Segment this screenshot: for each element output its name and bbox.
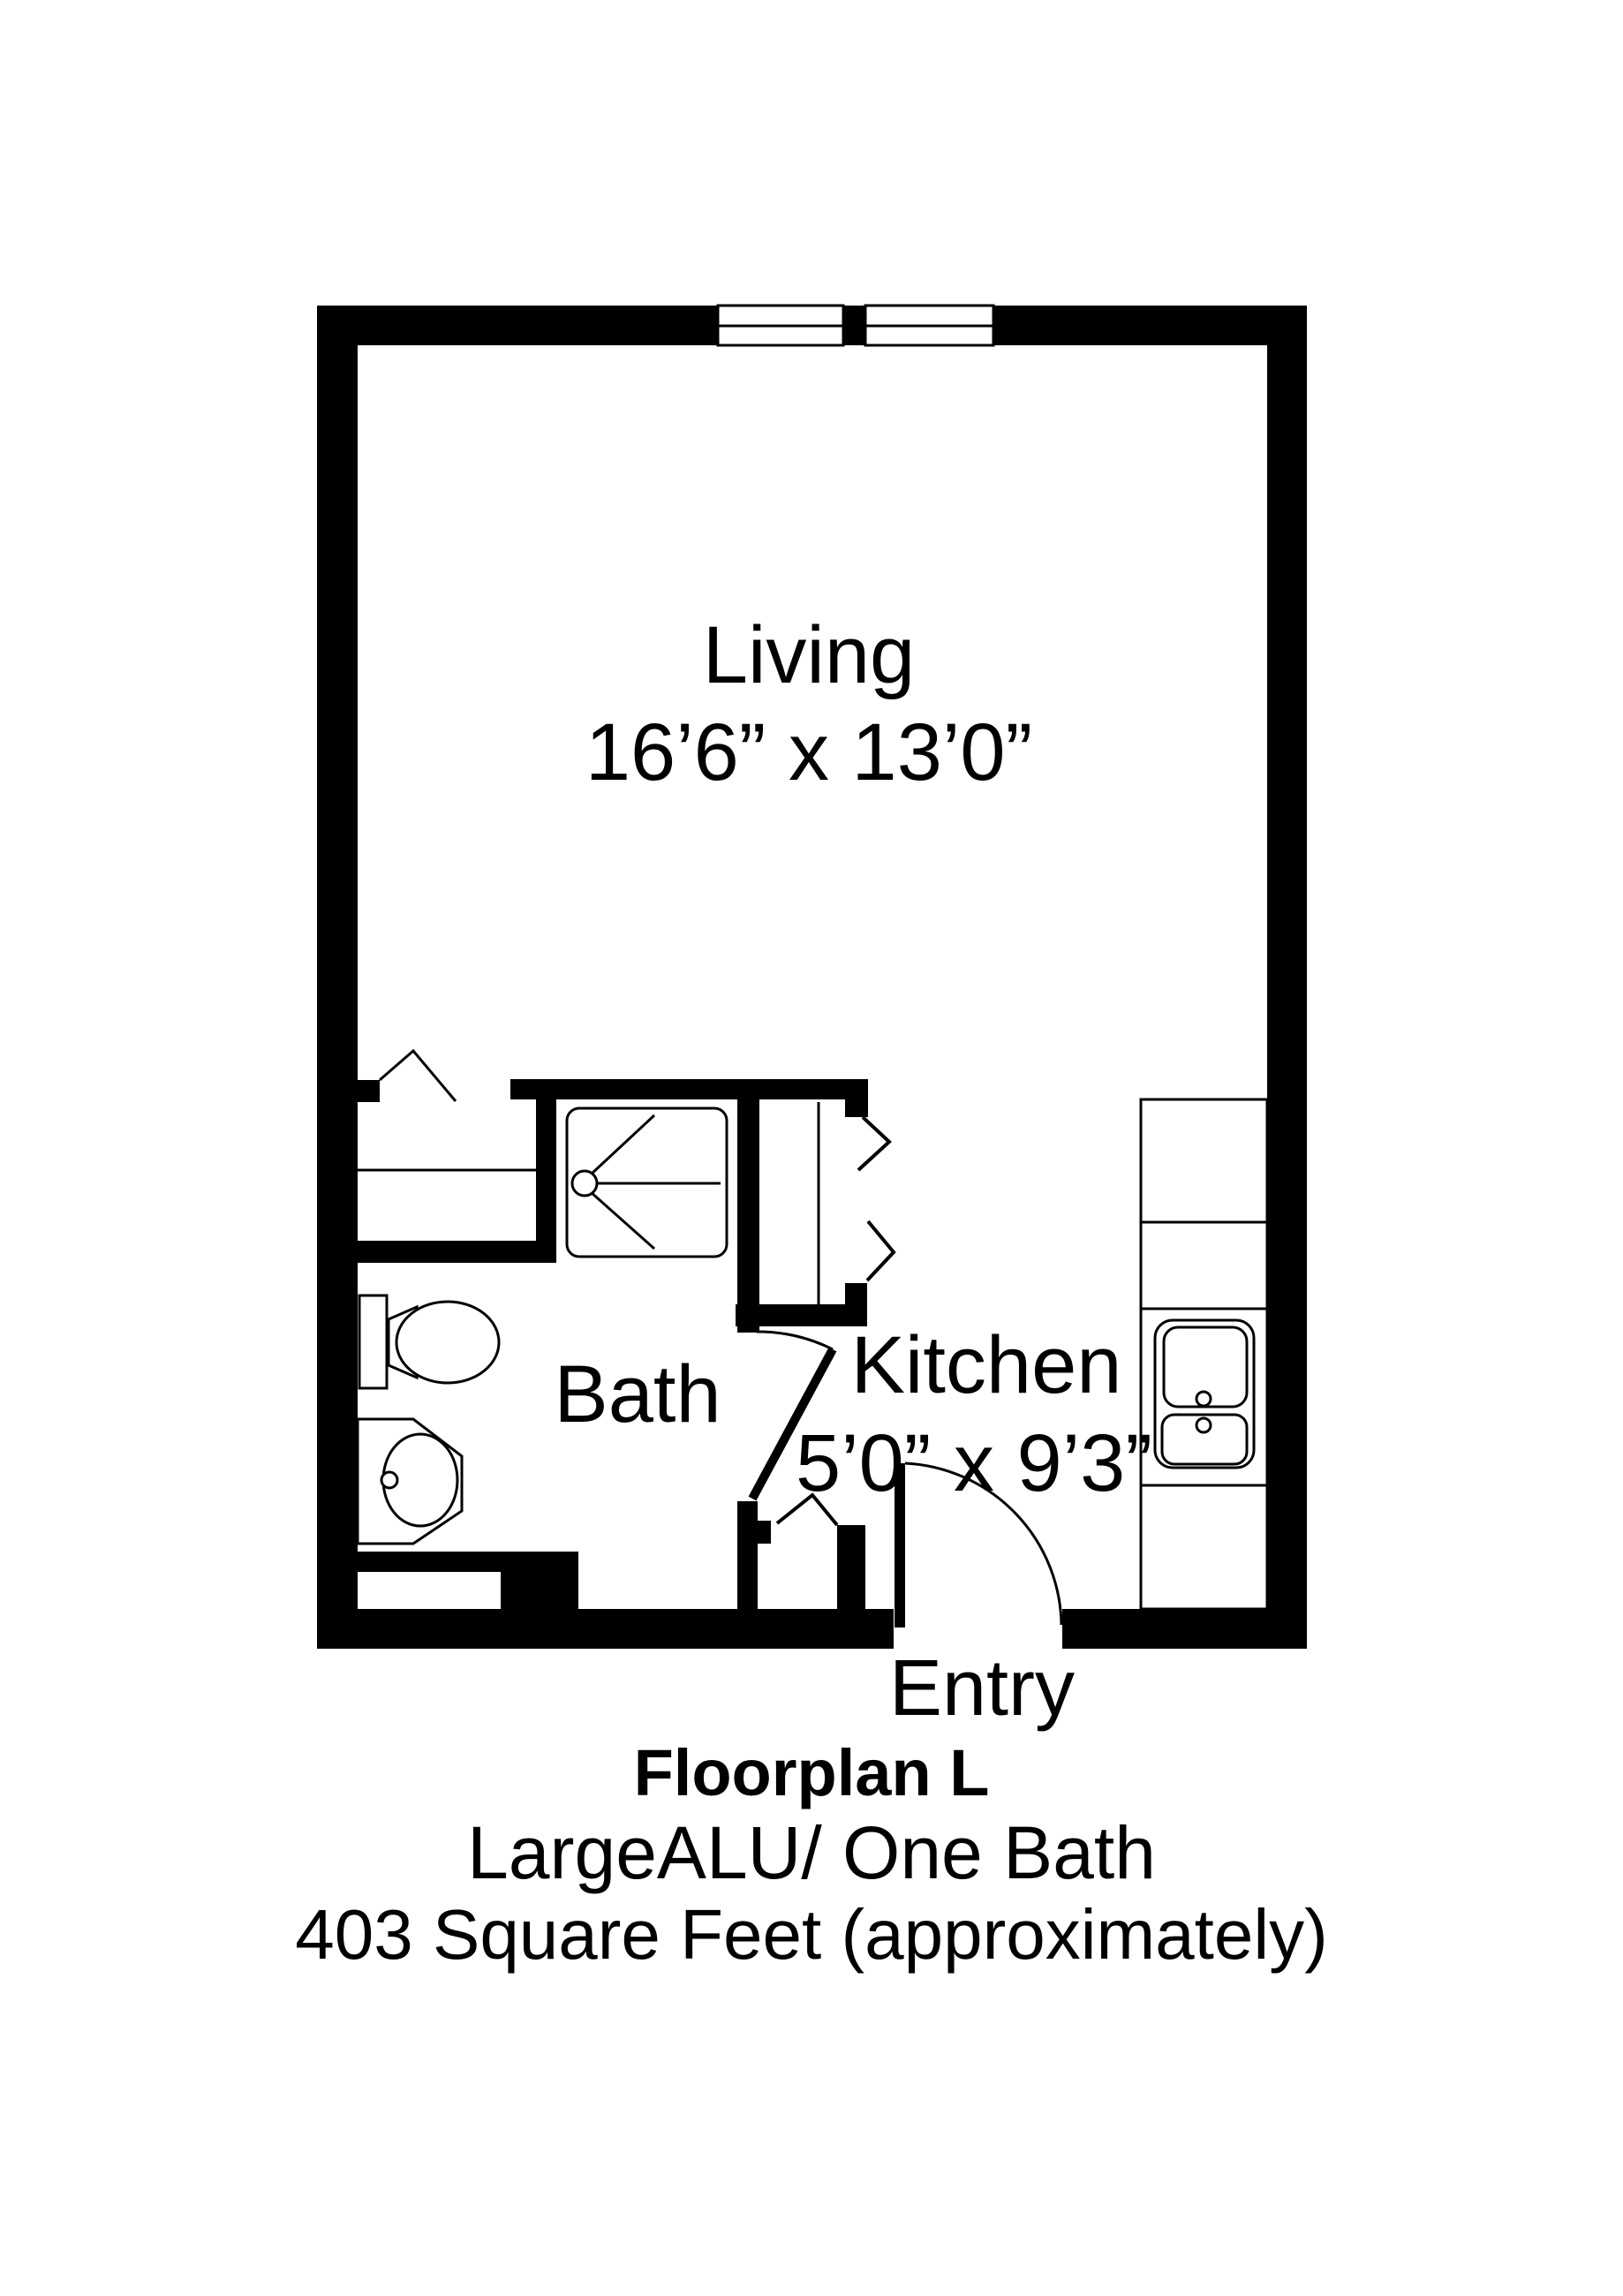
shower-icon [567, 1108, 727, 1257]
kitchen-dimensions: 5’0” x 9’3” [796, 1418, 1152, 1508]
floorplan-area: 403 Square Feet (approximately) [295, 1895, 1328, 1974]
floorplan-drawing: Living 16’6” x 13’0” Bath Kitchen 5’0” x… [0, 0, 1623, 2296]
floorplan-page: Living 16’6” x 13’0” Bath Kitchen 5’0” x… [0, 0, 1623, 2296]
bath-label: Bath [554, 1349, 721, 1439]
closet-door-chevron-icon [380, 1051, 456, 1101]
kitchen-label: Kitchen [851, 1320, 1122, 1410]
entry-label: Entry [889, 1644, 1075, 1733]
living-room-dimensions: 16’6” x 13’0” [585, 707, 1032, 797]
floorplan-subtitle: LargeALU/ One Bath [467, 1811, 1156, 1894]
toilet-icon [359, 1295, 499, 1388]
pantry-bifold-icon [819, 1102, 894, 1304]
kitchen-sink-icon [1155, 1320, 1254, 1468]
closet-left [358, 1051, 536, 1170]
floorplan-title: Floorplan L [634, 1736, 990, 1809]
bathroom-sink-icon [358, 1419, 462, 1544]
living-room-label: Living [703, 610, 915, 700]
